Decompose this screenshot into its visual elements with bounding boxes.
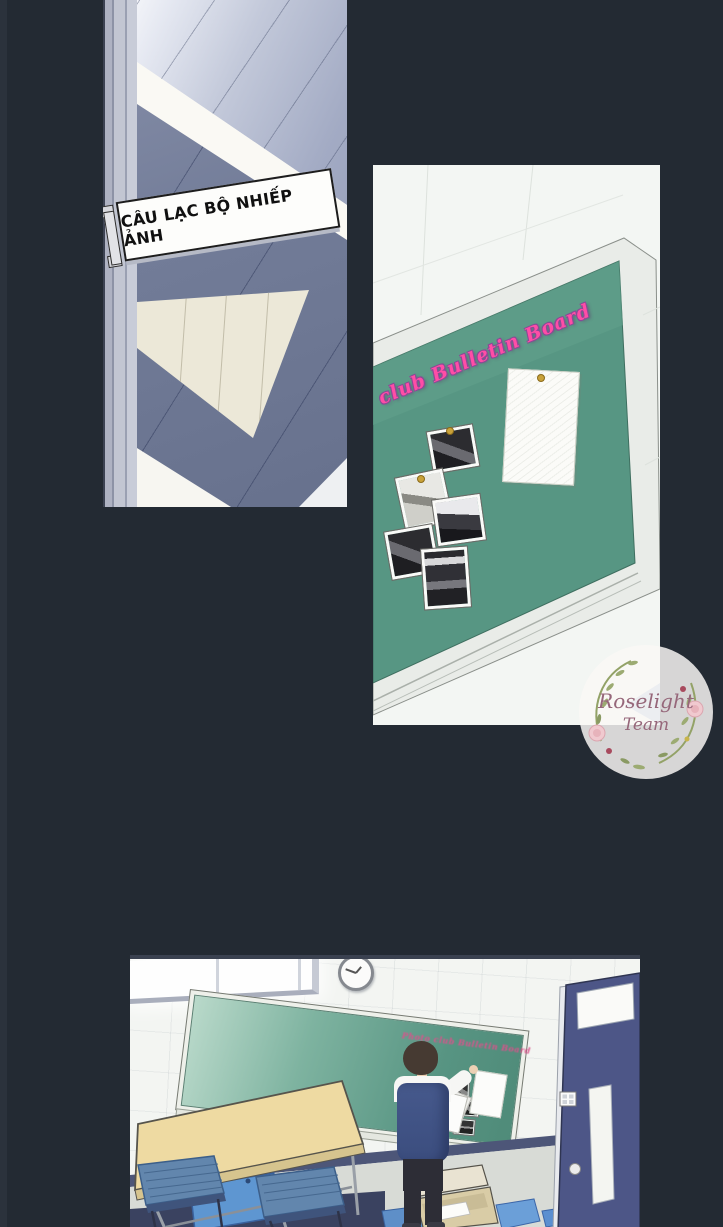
door-window bbox=[589, 1085, 614, 1204]
panel-classroom: Photo club Bulletin Board bbox=[130, 955, 640, 1227]
push-pin bbox=[417, 475, 425, 483]
vest bbox=[397, 1083, 449, 1163]
hair bbox=[403, 1041, 438, 1075]
shoe bbox=[427, 1222, 445, 1227]
door-knob bbox=[570, 1164, 581, 1175]
watermark-badge: Roselight Team bbox=[579, 645, 713, 779]
light-switch bbox=[560, 1092, 576, 1106]
hand bbox=[469, 1065, 478, 1074]
leg bbox=[425, 1185, 442, 1225]
watermark-line1: Roselight bbox=[579, 689, 713, 713]
push-pin bbox=[537, 374, 545, 382]
panel-door-hallway: CÂU LẠC BỘ NHIẾP ẢNH bbox=[103, 0, 347, 507]
shoe bbox=[402, 1223, 421, 1227]
page-edge-strip bbox=[0, 0, 7, 1227]
pinned-paper bbox=[502, 368, 580, 486]
sign-text: CÂU LẠC BỘ NHIẾP ẢNH bbox=[119, 179, 336, 250]
panel-bulletin-closeup: club Bulletin Board bbox=[373, 165, 660, 725]
classroom-furniture bbox=[130, 959, 640, 1227]
push-pin bbox=[446, 427, 454, 435]
watermark-line2: Team bbox=[579, 715, 713, 735]
comic-page: CÂU LẠC BỘ NHIẾP ẢNH club Bulletin Board bbox=[0, 0, 723, 1227]
pinned-photo bbox=[421, 546, 471, 609]
pinned-photo bbox=[432, 494, 486, 546]
leg bbox=[404, 1187, 421, 1225]
